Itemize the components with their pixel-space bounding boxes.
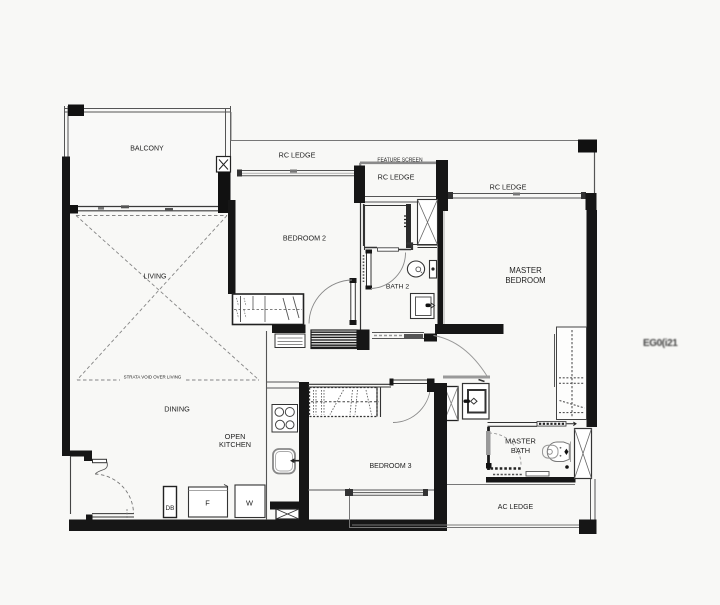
svg-text:BATH: BATH — [511, 446, 530, 455]
svg-text:EG0(i21: EG0(i21 — [643, 338, 678, 349]
svg-text:RC LEDGE: RC LEDGE — [279, 151, 316, 160]
svg-text:LIVING: LIVING — [144, 274, 167, 281]
svg-text:DINING: DINING — [164, 405, 190, 414]
svg-text:MASTER: MASTER — [505, 437, 536, 446]
svg-text:BEDROOM 3: BEDROOM 3 — [369, 463, 411, 470]
svg-text:BEDROOM: BEDROOM — [505, 276, 545, 285]
svg-text:BALCONY: BALCONY — [130, 146, 164, 153]
svg-text:RC LEDGE: RC LEDGE — [378, 173, 415, 182]
svg-text:RC LEDGE: RC LEDGE — [490, 183, 527, 192]
svg-text:KITCHEN: KITCHEN — [219, 440, 251, 449]
svg-text:BATH 2: BATH 2 — [386, 284, 410, 291]
svg-text:STRATA VOID OVER LIVING: STRATA VOID OVER LIVING — [124, 375, 182, 380]
svg-text:F: F — [205, 499, 210, 508]
svg-text:DB: DB — [166, 505, 175, 512]
svg-text:W: W — [246, 499, 253, 508]
svg-text:BEDROOM 2: BEDROOM 2 — [283, 234, 326, 243]
svg-text:MASTER: MASTER — [509, 266, 542, 275]
svg-text:AC LEDGE: AC LEDGE — [498, 504, 534, 511]
